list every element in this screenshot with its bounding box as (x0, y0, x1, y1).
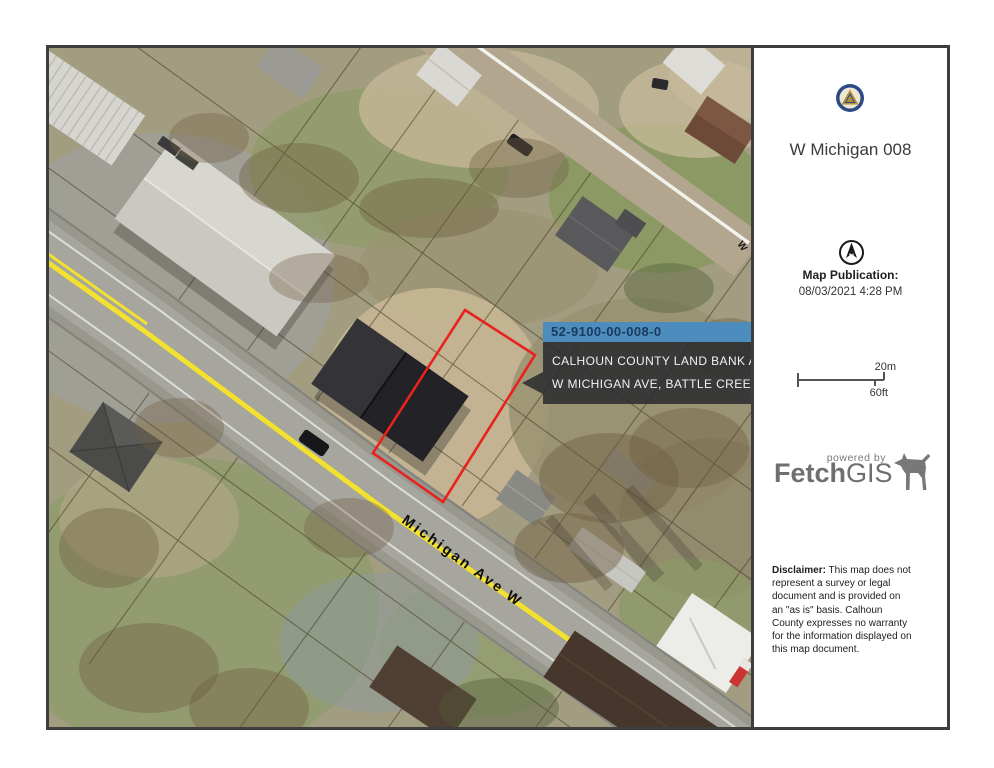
parcel-address: W MICHIGAN AVE, BATTLE CREEK (552, 373, 751, 396)
parcel-callout-body: CALHOUN COUNTY LAND BANK AUT W MICHIGAN … (543, 342, 751, 404)
pointer-dog-icon (892, 449, 932, 493)
disclaimer-body: This map does not represent a survey or … (772, 565, 912, 655)
map-title: W Michigan 008 (754, 140, 947, 160)
disclaimer-label: Disclaimer: (772, 565, 826, 576)
fetchgis-logo-light: GIS (846, 458, 893, 488)
fetchgis-logo: FetchGIS (774, 460, 893, 487)
scale-metric-label: 20m (875, 361, 896, 373)
scale-imperial-label: 60ft (870, 387, 888, 399)
parcel-id-header: 52-9100-00-008-0 (543, 322, 751, 342)
scale-bar: 20m 60ft (794, 360, 906, 400)
fetchgis-logo-bold: Fetch (774, 458, 846, 488)
disclaimer-text: Disclaimer: This map does not represent … (772, 564, 914, 656)
parcel-callout: 52-9100-00-008-0 CALHOUN COUNTY LAND BAN… (543, 322, 751, 404)
map-publication-datetime: 08/03/2021 4:28 PM (754, 286, 947, 298)
map-publication-label: Map Publication: (754, 268, 947, 282)
callout-pointer-arrow (522, 372, 543, 394)
map-viewport[interactable]: Michigan Ave W W 52-9100-00-008-0 CALHOU… (49, 48, 751, 727)
parcel-owner: CALHOUN COUNTY LAND BANK AUT (552, 350, 751, 373)
map-publication-frame: Michigan Ave W W 52-9100-00-008-0 CALHOU… (46, 45, 950, 730)
calhoun-county-seal-icon (835, 83, 865, 113)
north-arrow-icon: N (838, 239, 865, 266)
map-info-sidebar: W Michigan 008 N Map Publication: 08/03/… (751, 48, 947, 727)
svg-text:N: N (849, 254, 854, 261)
